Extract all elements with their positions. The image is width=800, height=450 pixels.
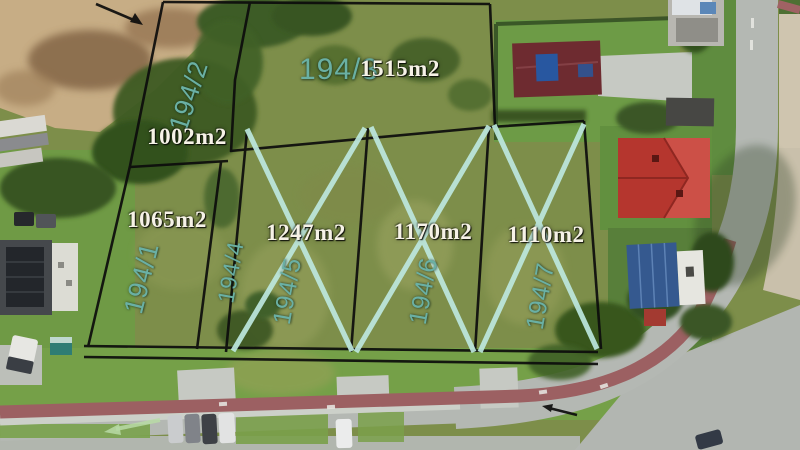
shed-red-roof <box>644 309 666 326</box>
aerial-photo-scene <box>0 0 800 450</box>
house-solar-roof <box>626 241 705 309</box>
garage-dark-roof <box>666 98 714 127</box>
hedge-row <box>492 110 586 122</box>
shed-teal-roof <box>50 337 72 355</box>
white-car <box>336 419 353 449</box>
house-construction <box>668 0 724 46</box>
solar-panels <box>536 54 559 82</box>
terrace <box>52 243 78 311</box>
house-red-roof <box>618 138 710 218</box>
house-dark-roof-left <box>0 240 78 315</box>
aerial-plot-map: 194/3 1515m2 194/2 1002m2 194/1 1065m2 1… <box>0 0 800 450</box>
roadside-sand-ne <box>779 0 800 148</box>
house-maroon-roof <box>512 40 602 97</box>
